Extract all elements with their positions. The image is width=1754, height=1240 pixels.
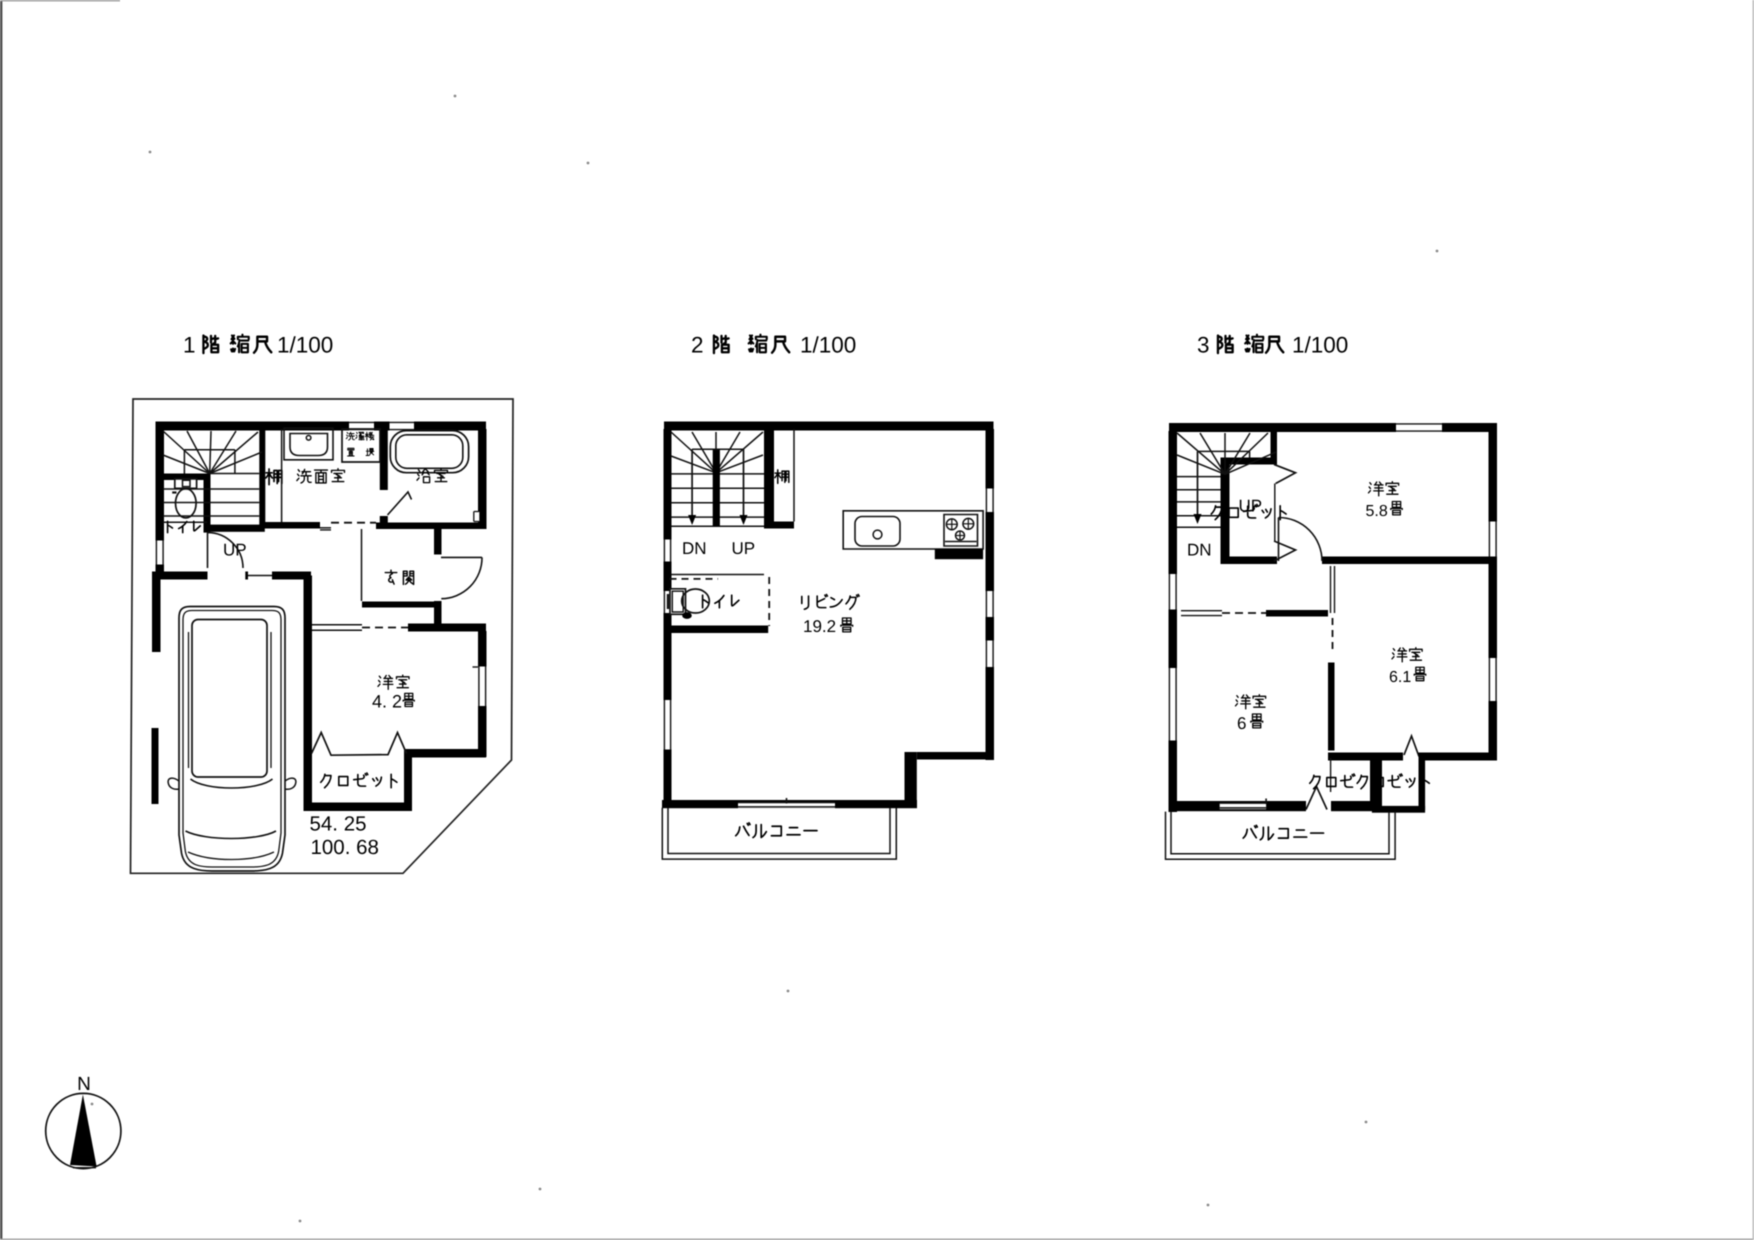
svg-text:UP: UP: [223, 541, 247, 560]
svg-text:1/100: 1/100: [1292, 333, 1348, 358]
svg-text:1: 1: [183, 333, 196, 358]
svg-text:19.2: 19.2: [803, 617, 836, 636]
svg-text:UP: UP: [732, 539, 756, 558]
svg-text:5.8: 5.8: [1366, 503, 1388, 520]
svg-text:6: 6: [1237, 714, 1246, 733]
svg-text:DN: DN: [682, 539, 707, 558]
svg-text:4. 2: 4. 2: [372, 692, 402, 712]
svg-text:3: 3: [1197, 333, 1210, 358]
svg-text:1/100: 1/100: [800, 333, 856, 358]
svg-text:N: N: [77, 1074, 91, 1095]
svg-text:1/100: 1/100: [277, 333, 333, 358]
svg-text:6.1: 6.1: [1389, 669, 1411, 686]
svg-text:2: 2: [691, 333, 704, 358]
svg-text:DN: DN: [1187, 541, 1212, 560]
svg-text:54. 25: 54. 25: [310, 813, 367, 836]
svg-text:100. 68: 100. 68: [311, 836, 379, 859]
